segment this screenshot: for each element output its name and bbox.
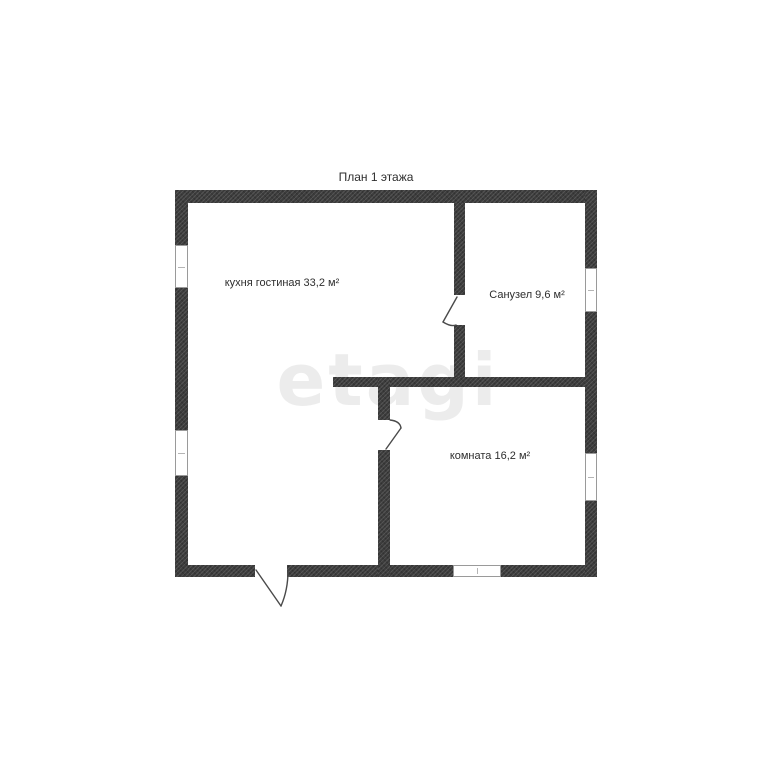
door-room [386,420,401,449]
wall-outer-right-segment [585,190,597,268]
window-bottom [453,565,501,577]
window-right-lower [585,453,597,501]
wall-outer-left-segment [175,288,188,430]
wall-outer-left-segment [175,190,188,245]
room-label-room: комната 16,2 м² [450,450,530,462]
wall-bathroom-divider-segment [454,203,465,295]
wall-horizontal-divider [333,377,585,387]
wall-room-divider-segment [378,450,390,577]
door-bathroom [443,297,457,326]
wall-outer-right-segment [585,312,597,453]
wall-outer-left-segment [175,476,188,577]
wall-outer-bottom-segment [287,565,453,577]
room-label-bathroom: Санузел 9,6 м² [489,289,564,301]
door-entrance [256,570,288,606]
wall-room-divider-segment [378,377,390,420]
room-label-kitchen-living: кухня гостиная 33,2 м² [225,277,340,289]
window-right-upper [585,268,597,312]
window-left-upper [175,245,188,288]
floor-plan: etagi [0,0,768,768]
window-left-lower [175,430,188,476]
wall-outer-right-segment [585,501,597,577]
wall-outer-bottom-segment [501,565,597,577]
wall-outer-top [175,190,597,203]
plan-title: План 1 этажа [339,170,414,184]
